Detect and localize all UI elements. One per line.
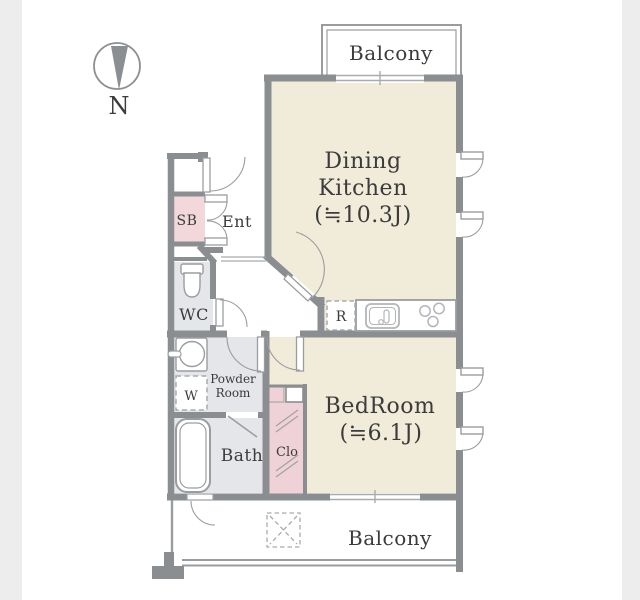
toilet-icon <box>181 264 203 297</box>
dining-kitchen-label-line2: Kitchen <box>318 176 408 201</box>
compass-north-label: N <box>109 92 130 120</box>
shoe-box-door-leaf-bottom <box>205 238 227 245</box>
bedroom-label: BedRoom <box>325 394 436 419</box>
balcony-top-label: Balcony <box>349 41 433 65</box>
bathtub-icon <box>176 419 210 492</box>
entrance-label: Ent <box>222 212 252 231</box>
dining-kitchen-size-label: (≒10.3J) <box>314 203 411 228</box>
shoe-box-door-leaf-top <box>205 195 227 202</box>
closet-upper-cabinet <box>286 387 303 402</box>
closet-pipe-space <box>269 387 284 402</box>
powder-room-label-line1: Powder <box>210 372 256 386</box>
bedroom-door-leaf <box>297 337 304 371</box>
floor-plan-drawing: N Balcony Dining Kitchen (≒10.3J) SB Ent… <box>0 0 640 600</box>
bedroom-size-label: (≒6.1J) <box>340 421 423 446</box>
refrigerator-space-label: R <box>336 309 347 325</box>
front-door-leaf <box>203 158 210 192</box>
dining-kitchen-label-line1: Dining <box>324 149 401 174</box>
right-margin-strip <box>622 0 640 600</box>
evacuation-hatch-icon <box>267 513 300 547</box>
kitchen-counter <box>356 300 456 331</box>
wc-label: WC <box>179 305 209 324</box>
balcony-step-foot <box>152 566 184 579</box>
shoe-box-label: SB <box>177 213 198 229</box>
washer-space-label: W <box>184 389 198 404</box>
left-margin-strip <box>0 0 22 600</box>
bath-label: Bath <box>221 446 263 466</box>
floor-plan-page: N Balcony Dining Kitchen (≒10.3J) SB Ent… <box>0 0 640 600</box>
balcony-service-door-leaf <box>187 494 213 500</box>
powder-room-door-leaf <box>258 337 265 372</box>
wc-door-leaf <box>216 299 223 326</box>
closet-label: Clo <box>276 445 298 460</box>
balcony-bottom-label: Balcony <box>348 526 432 550</box>
powder-room-label-line2: Room <box>216 386 251 400</box>
